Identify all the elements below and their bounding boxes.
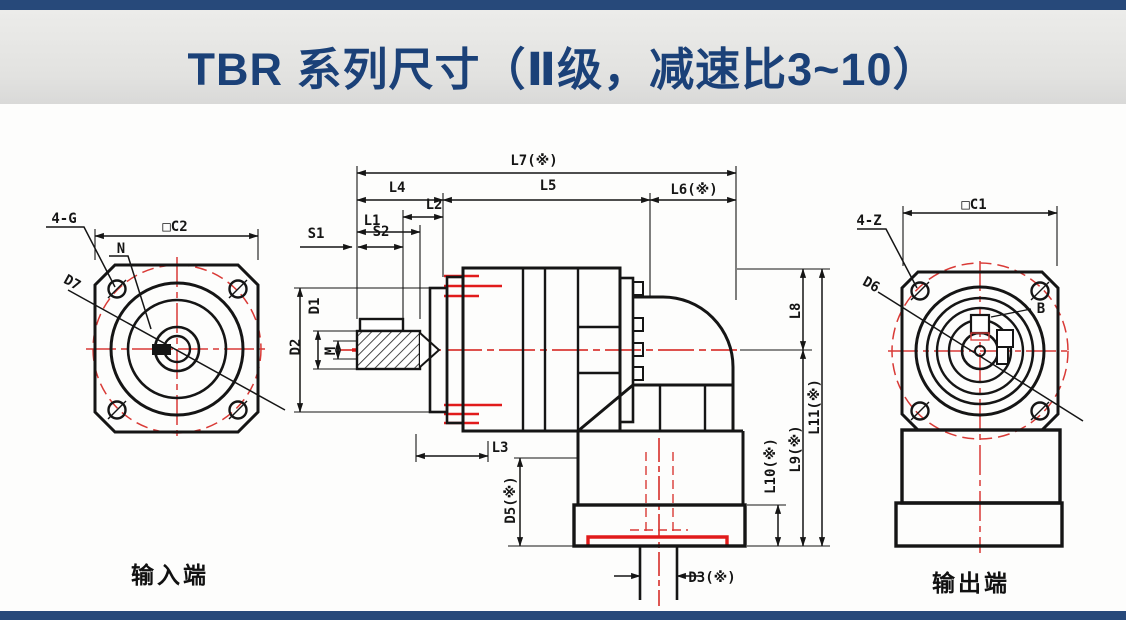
dim-label-l8: L8: [789, 303, 803, 320]
dim-label-d2: D2: [289, 339, 303, 356]
dim-label-d1: D1: [308, 298, 322, 315]
view-caption-output: 输出端: [932, 564, 1010, 598]
input-end-view: [46, 227, 285, 441]
output-end-view: [857, 206, 1083, 553]
dim-label-4g: 4-G: [51, 212, 76, 226]
dim-label-l3: L3: [492, 441, 509, 455]
dim-label-s1: S1: [308, 227, 325, 241]
dim-label-l4: L4: [389, 181, 406, 195]
dim-label-l2: L2: [426, 198, 443, 212]
dim-label-l9: L9(※): [789, 425, 803, 472]
dim-label-n: N: [117, 242, 125, 256]
view-caption-input: 输入端: [131, 556, 209, 590]
dim-label-l6: L6(※): [670, 183, 717, 197]
dim-label-l11: L11(※): [808, 379, 822, 435]
dim-label-l7: L7(※): [510, 154, 557, 168]
dim-label-c1: □C1: [961, 198, 986, 212]
dim-label-4z: 4-Z: [856, 214, 881, 228]
page: TBR 系列尺寸（Ⅱ级，减速比3~10）: [0, 0, 1126, 620]
dim-label-d3: D3(※): [688, 571, 735, 585]
technical-drawing: [0, 0, 1126, 620]
dim-label-c2: □C2: [162, 220, 187, 234]
dim-label-l5: L5: [540, 179, 557, 193]
dim-label-s2: S2: [373, 225, 390, 239]
dim-label-b: B: [1037, 302, 1045, 316]
dim-label-d5: D5(※): [504, 476, 518, 523]
dim-label-l10: L10(※): [764, 438, 778, 494]
dim-label-m: M: [324, 347, 338, 355]
bottom-accent-bar: [0, 611, 1126, 620]
